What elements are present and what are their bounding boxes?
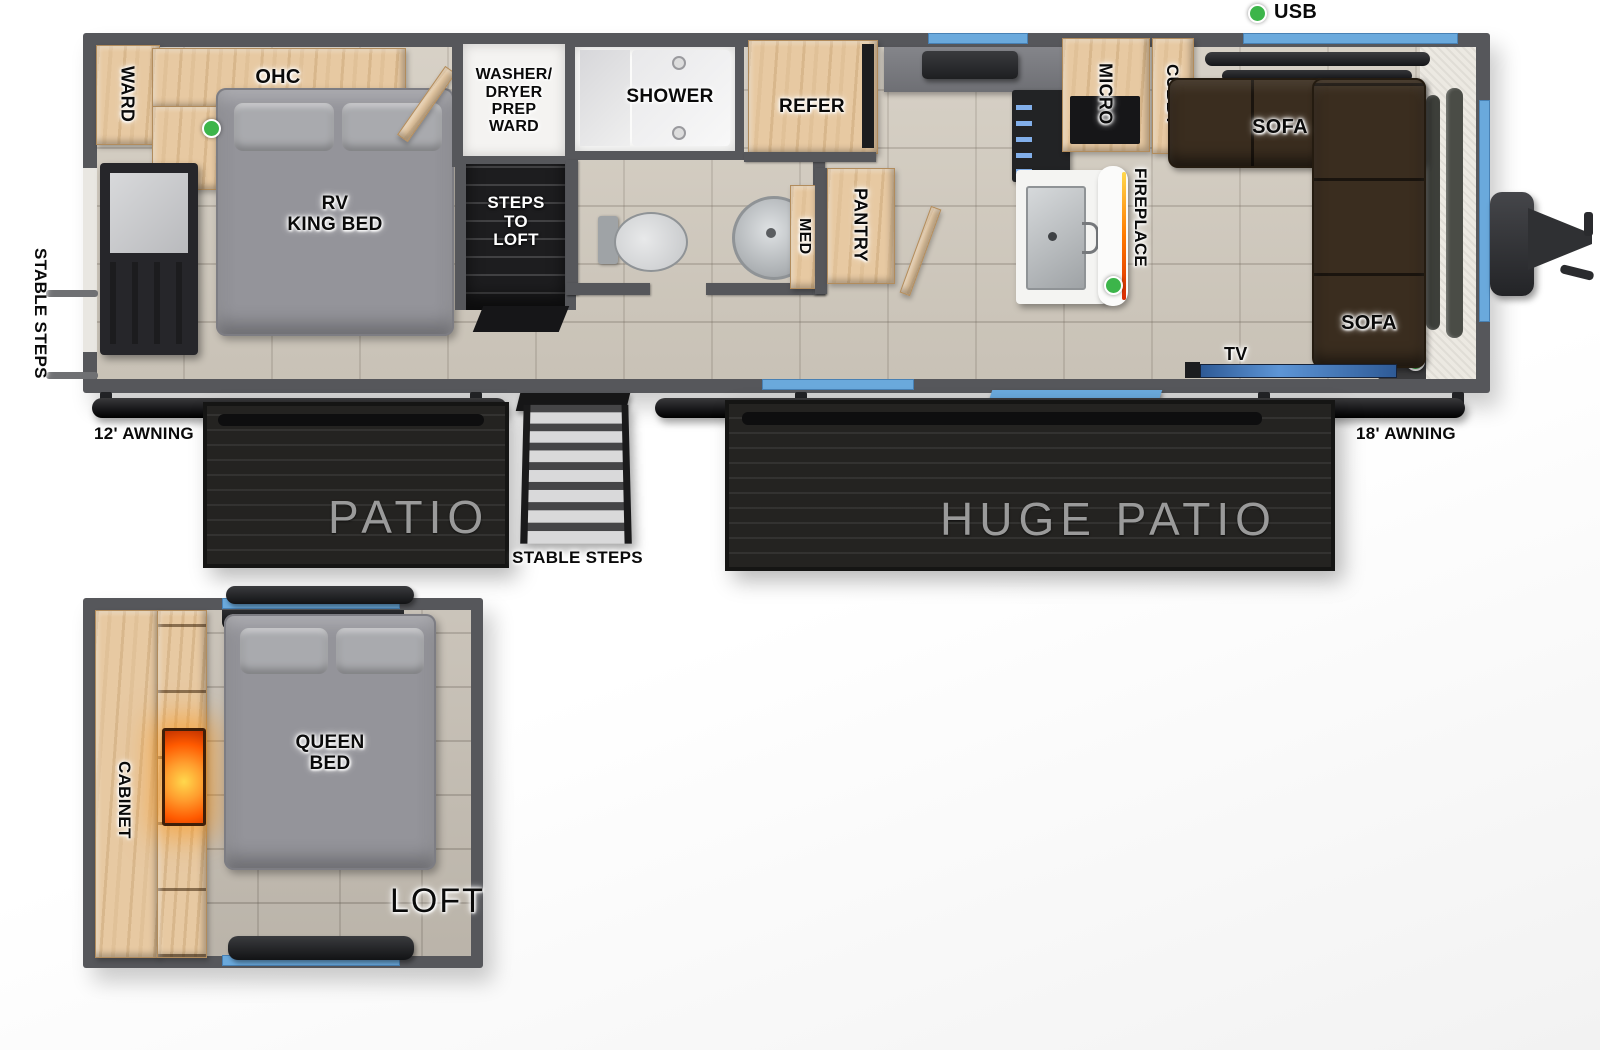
stored-board-2	[1446, 88, 1463, 338]
step-rail-bottom	[46, 372, 98, 379]
bath-sink-drain	[766, 228, 776, 238]
loft-storage-tray-bottom	[228, 936, 414, 960]
usb-indicator-dot-top	[1248, 4, 1267, 23]
queen-pillow-right	[336, 628, 424, 674]
rv-king-bed-label: RVKING BED	[216, 180, 454, 250]
king-pillow-left	[234, 103, 334, 151]
window-top-sofa	[1243, 33, 1458, 44]
hitch-box	[1490, 192, 1534, 296]
rear-door-glass-top	[110, 173, 188, 253]
shower-head	[672, 56, 686, 70]
loft-label: LOFT	[390, 882, 485, 921]
rear-entry-opening	[83, 168, 97, 352]
toilet-bowl	[614, 212, 688, 272]
washer-dryer-label: WASHER/DRYERPREPWARD	[458, 45, 570, 157]
fireplace-label: FIREPLACE	[1130, 168, 1150, 308]
ward-label: WARD	[96, 45, 158, 143]
floorplan-scene: WARD OHC RVKING BED STABLE STEPS WASHER/…	[0, 0, 1600, 1050]
rear-door-railing	[110, 262, 188, 344]
pantry-label: PANTRY	[827, 168, 893, 282]
awning-left-label: 12' AWNING	[94, 424, 194, 444]
range-hood	[922, 51, 1018, 79]
usb-indicator-dot-island	[1104, 276, 1123, 295]
tv-panel	[1200, 364, 1397, 378]
stored-board-1	[1426, 95, 1440, 330]
stable-steps-center-label: STABLE STEPS	[505, 546, 650, 570]
patio-label: PATIO	[328, 490, 489, 544]
window-front-wall	[1479, 100, 1490, 322]
usb-indicator-dot-bedroom	[202, 119, 221, 138]
awning-right-label: 18' AWNING	[1356, 424, 1456, 444]
bath-wall-bottom-left	[566, 283, 650, 295]
bath-wall-left	[566, 160, 578, 295]
queen-pillow-left	[240, 628, 328, 674]
shower-label: SHOWER	[600, 80, 740, 114]
refer-label: REFER	[748, 92, 876, 122]
kitchen-faucet	[1082, 222, 1099, 254]
steps-to-loft-label: STEPSTOLOFT	[466, 172, 566, 272]
stove-burners	[1016, 96, 1032, 174]
window-valance-1	[1205, 52, 1430, 66]
stable-steps-stairs	[520, 405, 632, 544]
micro-label: MICRO	[1062, 38, 1148, 150]
hitch-jack	[1584, 212, 1593, 236]
queen-bed-label: QUEENBED	[224, 722, 436, 786]
fireplace-flame-edge	[1122, 172, 1126, 300]
loft-storage-tray-top	[226, 586, 414, 604]
kitchen-sink-drain	[1048, 232, 1057, 241]
hitch-arm	[1559, 264, 1594, 281]
cabinet-label: CABINET	[104, 740, 144, 860]
step-rail-top	[46, 290, 98, 297]
patio-top-rail	[218, 414, 484, 426]
huge-patio-label: HUGE PATIO	[940, 492, 1277, 546]
pantry-wall-left	[815, 168, 827, 294]
huge-patio-top-rail	[742, 412, 1262, 425]
shower-drain	[672, 126, 686, 140]
usb-label: USB	[1274, 1, 1317, 24]
hitch-a-frame	[1528, 208, 1592, 270]
sofa-right-label: SOFA	[1312, 308, 1426, 338]
refer-wall	[744, 152, 876, 162]
sofa-top-label: SOFA	[1200, 112, 1360, 142]
window-top-kitchen	[928, 33, 1028, 44]
tv-mount-left	[1185, 362, 1200, 378]
window-bottom	[762, 379, 914, 390]
loft-fireplace	[162, 728, 206, 826]
tv-label: TV	[1224, 344, 1248, 365]
steps-landing	[473, 306, 570, 332]
stable-steps-left-label: STABLE STEPS	[30, 248, 50, 398]
